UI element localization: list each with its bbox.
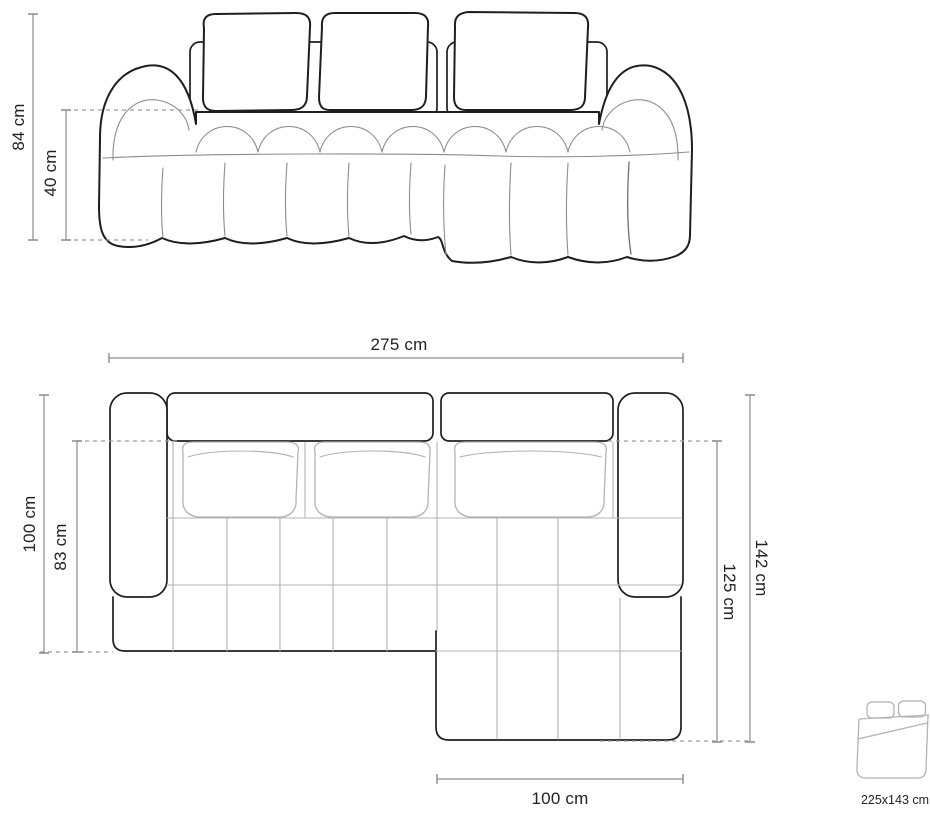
front-view-drawing: 84 cm 40 cm xyxy=(9,12,692,263)
right-inner-depth-dimension: 125 cm xyxy=(712,441,739,742)
inner-depth-label: 83 cm xyxy=(51,523,70,570)
back-pillow xyxy=(319,13,428,110)
inner-depth-dimension: 83 cm xyxy=(51,441,82,652)
front-height-label: 84 cm xyxy=(9,103,28,150)
right-depth-label: 142 cm xyxy=(752,540,771,597)
top-backrest-left xyxy=(167,393,433,441)
seat-cushion xyxy=(315,442,431,517)
front-seat-height-dimension: 40 cm xyxy=(41,110,71,240)
top-right-arm xyxy=(618,393,683,597)
front-seat-height-label: 40 cm xyxy=(41,149,60,196)
right-depth-dimension: 142 cm xyxy=(745,395,771,742)
depth-label: 100 cm xyxy=(20,496,39,553)
right-inner-depth-label: 125 cm xyxy=(720,564,739,621)
chaise-width-dimension: 100 cm xyxy=(437,774,683,808)
width-dimension: 275 cm xyxy=(109,335,683,363)
sofa-dimensions-diagram: 84 cm 40 cm xyxy=(0,0,930,820)
top-backrest-right xyxy=(441,393,613,441)
back-pillow xyxy=(203,13,310,111)
depth-dimension: 100 cm xyxy=(20,395,49,653)
seat-cushions xyxy=(183,442,607,517)
seat-cushion xyxy=(183,442,299,517)
front-height-dimension: 84 cm xyxy=(9,14,38,240)
back-pillow xyxy=(454,12,588,110)
chaise-width-label: 100 cm xyxy=(532,789,589,808)
top-left-arm xyxy=(110,393,167,597)
top-view-drawing: 275 cm 100 cm 83 cm 142 cm 125 cm xyxy=(20,335,771,808)
sleeping-size-label: 225x143 cm xyxy=(861,793,929,807)
sofa-bed-icon xyxy=(857,701,929,778)
width-label: 275 cm xyxy=(371,335,428,354)
